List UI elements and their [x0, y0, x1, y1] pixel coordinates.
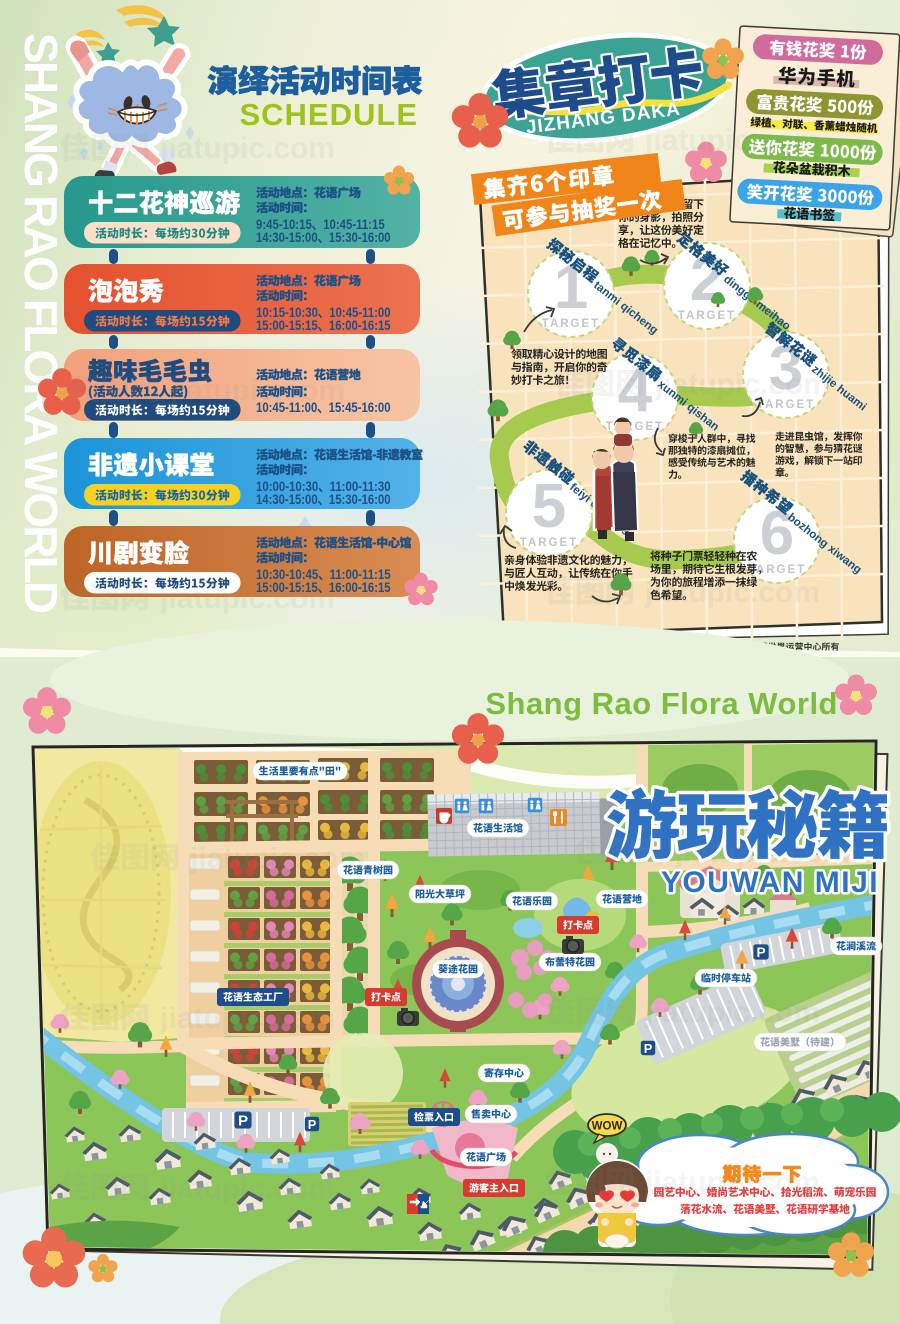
svg-text:WOW: WOW [592, 1121, 623, 1133]
svg-text:SHANG RAO FLORA WORLD: SHANG RAO FLORA WORLD [15, 33, 67, 613]
svg-text:jiatupic.com: jiatupic.com [674, 836, 850, 869]
svg-text:TARGET: TARGET [520, 537, 578, 549]
svg-text:TARGET: TARGET [542, 318, 600, 330]
svg-text:jiatupic.com: jiatupic.com [159, 582, 335, 615]
svg-text:SCHEDULE: SCHEDULE [239, 97, 418, 132]
svg-text:14:30-15:00、15:30-16:00: 14:30-15:00、15:30-16:00 [256, 229, 391, 245]
svg-text:jiatupic.com: jiatupic.com [189, 842, 365, 875]
svg-text:Shang Rao Flora World: Shang Rao Flora World [485, 686, 838, 721]
svg-text:jiatupic.com: jiatupic.com [644, 996, 820, 1029]
svg-text:jiatupic.com: jiatupic.com [169, 374, 345, 407]
svg-text:jiatupic.com: jiatupic.com [644, 124, 820, 157]
svg-text:15:00-15:15、16:00-16:15: 15:00-15:15、16:00-16:15 [256, 317, 391, 333]
svg-text:jiatupic.com: jiatupic.com [654, 368, 830, 401]
svg-text:14:30-15:00、15:30-16:00: 14:30-15:00、15:30-16:00 [256, 491, 391, 507]
svg-text:TARGET: TARGET [678, 310, 736, 322]
svg-text:jiatupic.com: jiatupic.com [159, 132, 335, 165]
svg-text:jiatupic.com: jiatupic.com [159, 1002, 335, 1035]
svg-text:jiatupic.com: jiatupic.com [644, 576, 820, 609]
svg-text:5: 5 [532, 472, 566, 541]
svg-text:jiatupic.com: jiatupic.com [159, 1172, 335, 1205]
svg-text:jiatupic.com: jiatupic.com [644, 1166, 820, 1199]
svg-text:YOUWAN MIJI: YOUWAN MIJI [661, 866, 879, 899]
